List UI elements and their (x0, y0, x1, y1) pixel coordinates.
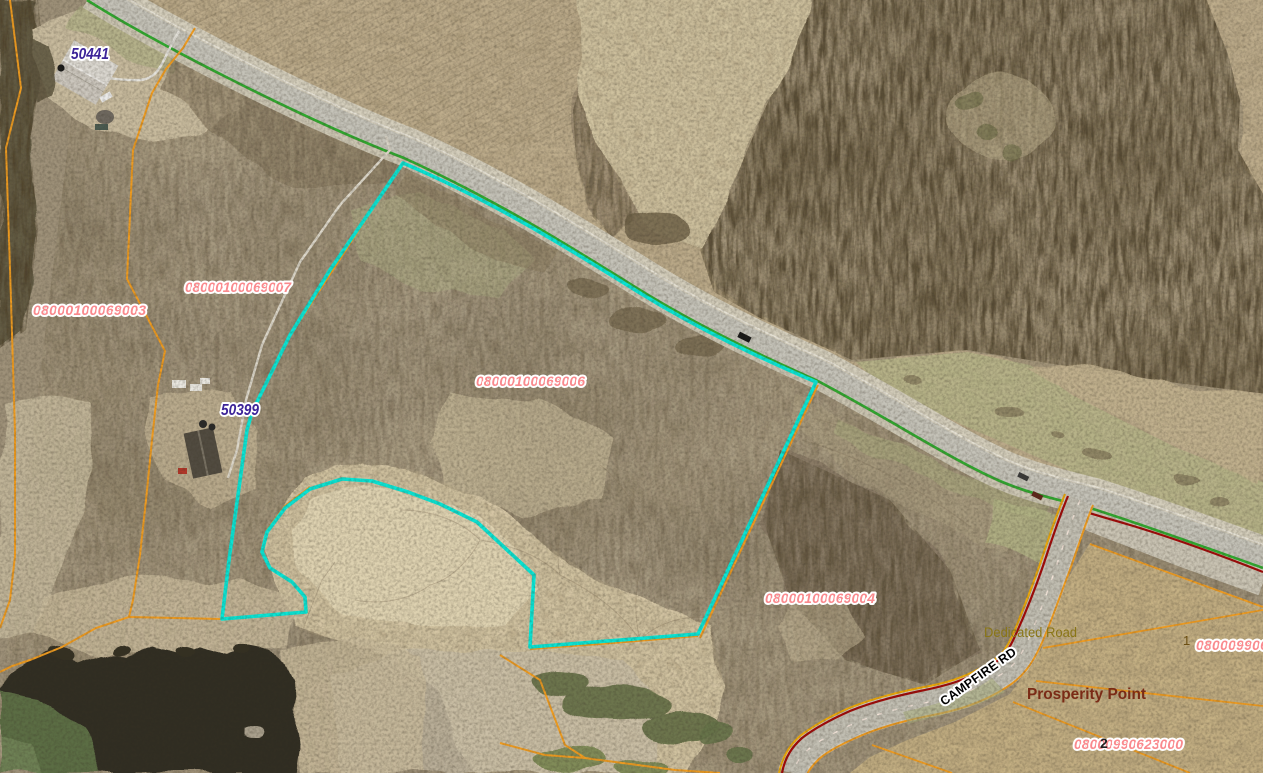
svg-text:Dedicated Road: Dedicated Road (984, 625, 1077, 640)
svg-text:Prosperity Point: Prosperity Point (1027, 686, 1147, 703)
svg-text:1: 1 (1183, 633, 1190, 648)
svg-text:0800099066: 0800099066 (1196, 637, 1263, 653)
svg-text:08000100069007: 08000100069007 (185, 279, 292, 295)
svg-text:50441: 50441 (71, 46, 109, 63)
svg-text:08000990623000: 08000990623000 (1074, 736, 1183, 752)
svg-text:08000100069006: 08000100069006 (476, 373, 585, 389)
svg-text:08000100069004: 08000100069004 (765, 590, 875, 606)
svg-text:50399: 50399 (221, 402, 259, 419)
svg-text:2: 2 (1100, 735, 1108, 751)
svg-text:08000100069003: 08000100069003 (33, 302, 146, 318)
